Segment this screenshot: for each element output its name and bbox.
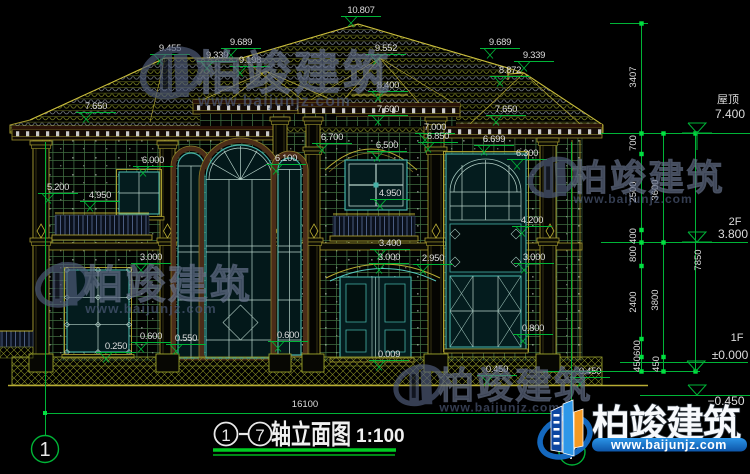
svg-text:屋顶: 屋顶: [717, 93, 739, 106]
svg-text:7.650: 7.650: [85, 101, 107, 112]
svg-text:6.850: 6.850: [427, 131, 449, 142]
svg-text:0.600: 0.600: [140, 331, 162, 342]
svg-text:450: 450: [651, 356, 662, 372]
svg-text:www.baijunjz.com: www.baijunjz.com: [197, 93, 351, 110]
svg-text:5.200: 5.200: [47, 182, 69, 193]
svg-text:1: 1: [39, 439, 50, 461]
svg-text:6.699: 6.699: [483, 134, 505, 145]
svg-text:0.800: 0.800: [522, 323, 544, 334]
svg-text:www.baijunjz.com: www.baijunjz.com: [572, 192, 692, 206]
svg-text:8.872: 8.872: [499, 65, 521, 76]
svg-text:4.950: 4.950: [379, 188, 401, 199]
svg-text:3.000: 3.000: [378, 252, 400, 263]
svg-text:3.000: 3.000: [140, 252, 162, 263]
svg-text:450: 450: [632, 356, 643, 372]
svg-text:www.baijunjz.com: www.baijunjz.com: [438, 400, 560, 414]
svg-text:10.807: 10.807: [347, 5, 374, 16]
svg-text:1F: 1F: [731, 332, 744, 344]
svg-text:700: 700: [628, 135, 639, 151]
svg-text:3.800: 3.800: [718, 227, 748, 241]
svg-text:±0.000: ±0.000: [712, 348, 749, 362]
svg-text:1: 1: [221, 426, 230, 445]
svg-text:0.009: 0.009: [378, 349, 400, 360]
svg-text:0.250: 0.250: [105, 341, 127, 352]
svg-text:6.000: 6.000: [142, 155, 164, 166]
svg-text:6.100: 6.100: [275, 153, 297, 164]
svg-text:4.200: 4.200: [521, 215, 543, 226]
svg-text:6.700: 6.700: [321, 132, 343, 143]
svg-text:7.650: 7.650: [495, 104, 517, 115]
svg-text:7: 7: [255, 426, 264, 445]
svg-text:www.baijunjz.com: www.baijunjz.com: [610, 438, 727, 452]
svg-text:800: 800: [628, 246, 639, 262]
svg-text:9.689: 9.689: [489, 37, 511, 48]
svg-text:柏竣建筑: 柏竣建筑: [196, 47, 392, 99]
svg-text:7850: 7850: [693, 249, 704, 270]
svg-text:7.400: 7.400: [715, 107, 745, 121]
svg-text:3800: 3800: [650, 289, 661, 310]
svg-text:3.400: 3.400: [379, 238, 401, 249]
svg-text:9.339: 9.339: [523, 50, 545, 61]
svg-text:4.950: 4.950: [89, 190, 111, 201]
svg-text:0.550: 0.550: [175, 333, 197, 344]
svg-text:6.300: 6.300: [516, 148, 538, 159]
svg-text:3407: 3407: [628, 66, 639, 87]
svg-text:400: 400: [628, 228, 639, 244]
svg-text:16100: 16100: [292, 399, 318, 410]
svg-text:7.600: 7.600: [377, 104, 399, 115]
svg-text:0.600: 0.600: [277, 330, 299, 341]
svg-text:2400: 2400: [628, 291, 639, 312]
svg-text:轴立面图: 轴立面图: [271, 419, 351, 450]
svg-text:6.500: 6.500: [376, 140, 398, 151]
svg-text:1:100: 1:100: [356, 426, 405, 447]
svg-text:www.baijunjz.com: www.baijunjz.com: [84, 301, 217, 316]
svg-text:600: 600: [632, 340, 643, 356]
svg-text:2.950: 2.950: [422, 253, 444, 264]
svg-text:3.000: 3.000: [523, 252, 545, 263]
